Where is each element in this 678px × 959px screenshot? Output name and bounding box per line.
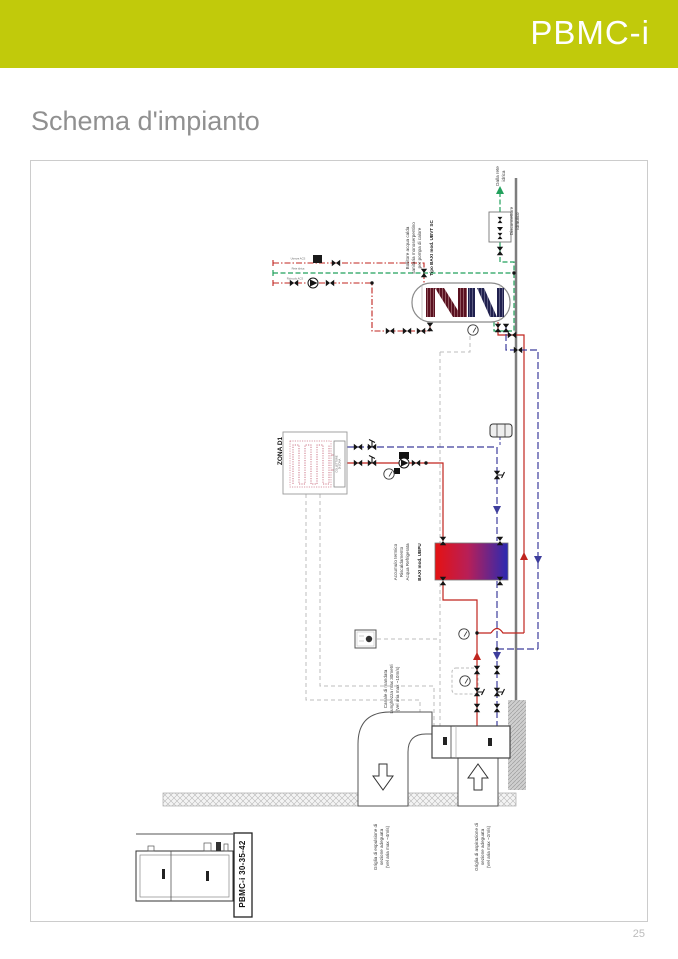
mixing-pump-group (384, 452, 420, 479)
room-controller-icon (355, 630, 376, 648)
air-separator-icon (490, 424, 512, 437)
label-stub-mains: Rete idrica (292, 268, 305, 271)
recirculation-pump-icon (308, 278, 318, 288)
unit-elevation-drawing (136, 833, 252, 917)
label-dhw-cylinder: Bollitore acqua calda sanitaria monoserp… (399, 220, 441, 276)
exhaust-elbow-duct (358, 712, 432, 806)
label-buffer-tank: Accumulo termico Riscaldamento Acqua Ref… (387, 543, 429, 581)
manual-page: PBMC-i Schema d'impianto (0, 0, 678, 959)
label-buffer-tank-model: BAXI mod. UBPU (417, 543, 423, 581)
zone-circuit (347, 437, 538, 726)
label-stub-dhw-users: Utenze ACS (291, 258, 306, 261)
indoor-unit (432, 726, 510, 758)
zone-return-arrow-icon (493, 652, 501, 660)
label-dhw-cylinder-model: Tipo BAXI mod. UBVT SC (429, 220, 435, 276)
return-thermometer-icon (460, 676, 470, 686)
label-water-mains: Dalla rete idrica (495, 166, 507, 186)
expansion-vessel-icon (313, 255, 322, 263)
label-unit-model: PBMC-i 30-35-42 (238, 840, 248, 907)
buffer-tank (435, 543, 508, 580)
label-disconnector: Disconnettore idraulico (509, 207, 521, 235)
label-zone-manifold: COLLETTORE DI ZONA (336, 455, 343, 472)
label-exhaust-grille: Griglia di espulsione di sezione adeguat… (373, 824, 391, 870)
schematic-drawing (0, 0, 678, 959)
hydraulic-disconnector (489, 212, 511, 242)
cylinder-thermometer-icon (468, 325, 478, 335)
page-number: 25 (633, 928, 645, 940)
supply-thermometer-icon (459, 629, 469, 639)
label-zone: ZONA D1 (277, 437, 285, 465)
zone-thermometer-icon (384, 469, 394, 479)
label-intake-grille: Griglia di aspirazione di sezione adegua… (474, 823, 492, 871)
riser-pipes (498, 322, 542, 649)
label-dhw-cylinder-text: Bollitore acqua calda sanitaria monoserp… (405, 220, 423, 276)
zone-flow-arrow-icon (473, 652, 481, 660)
flow-arrow-icon (520, 552, 528, 560)
tank-return-arrow-icon (493, 506, 501, 514)
return-arrow-icon (534, 556, 542, 564)
label-stub-recirculation: Ricircolo ACS (287, 278, 303, 281)
dhw-cylinder (412, 283, 510, 335)
label-supply-duct: Canale di mandata Lunghezza max 30metri … (383, 664, 401, 713)
label-buffer-tank-text: Accumulo termico Riscaldamento Acqua Ref… (393, 543, 411, 581)
mains-arrow-icon (496, 186, 504, 194)
